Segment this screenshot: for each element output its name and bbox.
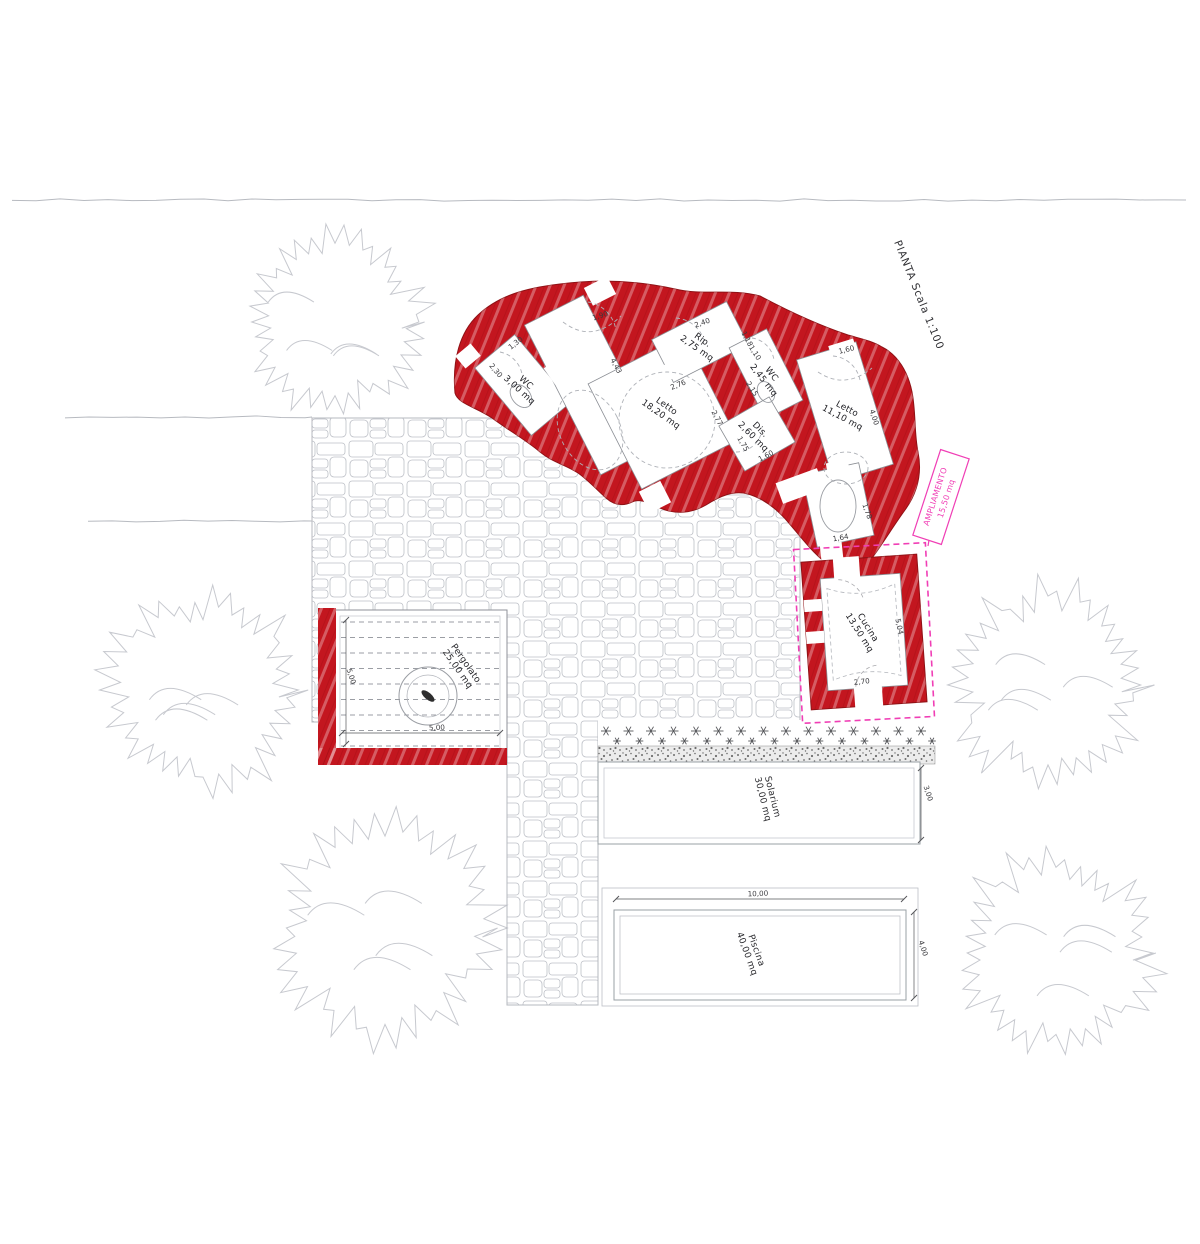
gravel-strip xyxy=(598,746,935,764)
tree-branch-squiggle xyxy=(1037,985,1089,996)
tree-canopy xyxy=(250,224,435,414)
tree-canopy xyxy=(274,807,508,1054)
tree-branch-squiggle xyxy=(995,924,1047,935)
tree-canopy xyxy=(948,574,1155,789)
tree-branch-squiggle xyxy=(1060,941,1112,952)
dimension-text-cucina_bottom: 2,70 xyxy=(853,676,870,687)
plan-title: PIANTA Scala 1:100 xyxy=(891,239,946,352)
tree-branch-squiggle xyxy=(1063,676,1112,687)
floor-plan-canvas: WC3,00 mqLetto18,20 mqRip.2,75 mqWC2,45 … xyxy=(0,0,1200,1244)
tree-branch-squiggle xyxy=(376,943,433,955)
dimension-text-piscina_side: 4,00 xyxy=(917,939,931,957)
tree-canopy xyxy=(962,846,1167,1054)
dimension-text-solarium_side: 3,00 xyxy=(922,784,936,802)
dimension-text-piscina_top: 10,00 xyxy=(747,889,768,899)
tree-branch-squiggle xyxy=(1001,689,1050,700)
tree-branch-squiggle xyxy=(354,957,411,969)
boundary-line xyxy=(65,416,312,418)
tree-canopy xyxy=(95,585,308,799)
tree-branch-squiggle xyxy=(1064,925,1116,936)
tree-branch-squiggle xyxy=(268,292,314,302)
tree-branch-squiggle xyxy=(365,891,422,903)
tree-branch-squiggle xyxy=(308,903,365,915)
vegetation-strip xyxy=(598,720,935,746)
pergolato-area xyxy=(333,610,507,763)
dimension-text-pergolato_bottom: 5,00 xyxy=(429,723,446,733)
tree-branch-squiggle xyxy=(287,341,333,351)
tree-branch-squiggle xyxy=(988,699,1037,710)
boundary-line xyxy=(88,520,312,522)
boundary-line xyxy=(12,199,1186,201)
ampliamento-annotation-box: AMPLIAMENTO 15,50 mq xyxy=(913,450,969,546)
tree-branch-squiggle xyxy=(996,654,1045,665)
